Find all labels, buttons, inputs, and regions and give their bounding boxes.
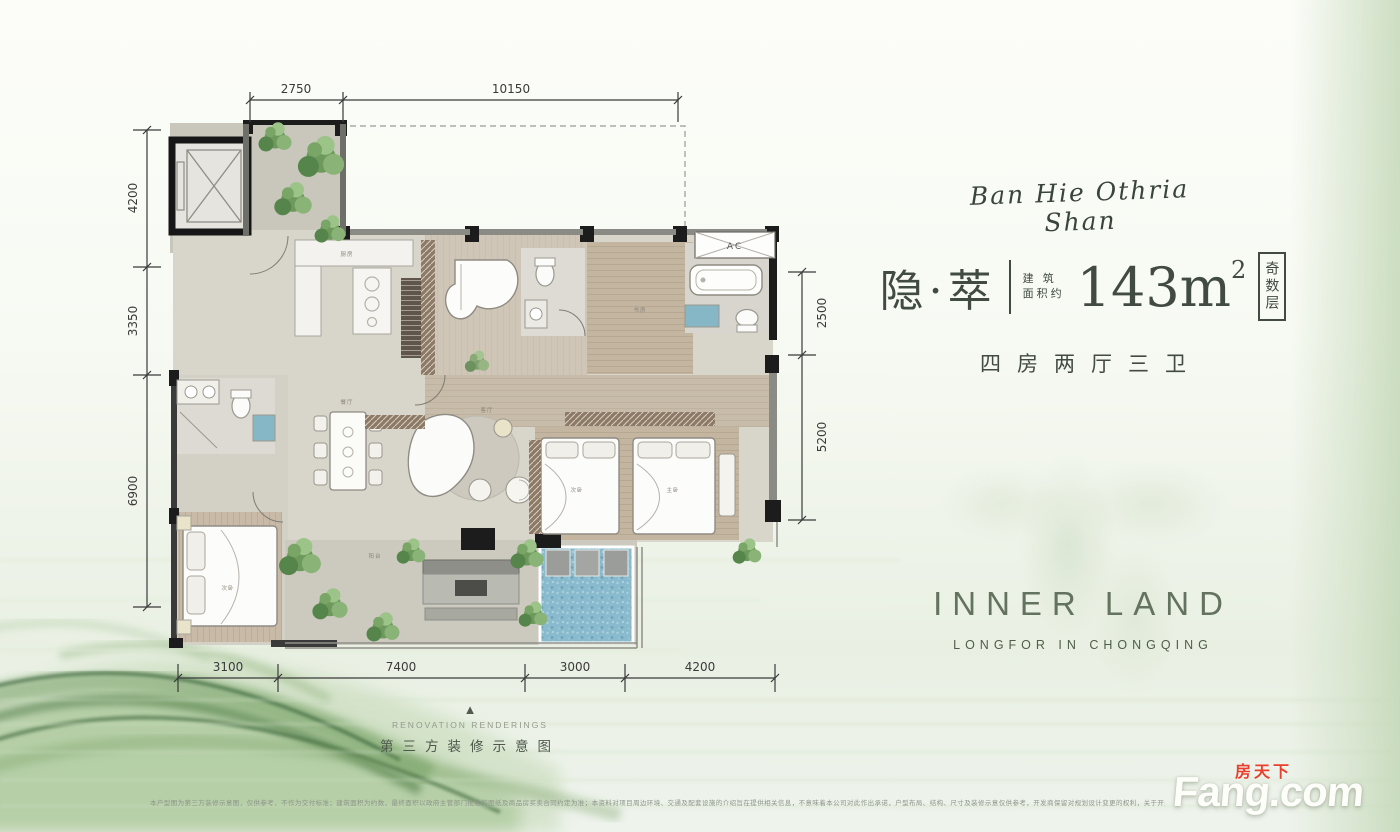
triangle-marker-icon: ▲	[320, 703, 620, 716]
label-balcony: 阳台	[368, 552, 381, 560]
floor-plan: 厨房 餐厅 客厅 书房 主卧 次卧 次卧 阳台 AC 2750 10150 42…	[125, 60, 835, 705]
dim-left-1: 4200	[126, 183, 140, 214]
tall-cabinet	[421, 240, 435, 375]
wine-shelf	[401, 278, 421, 358]
fang-en-text: Fang.com	[1171, 768, 1366, 816]
dim-left-3: 6900	[126, 476, 140, 507]
floor-tag-box: 奇数层	[1258, 252, 1286, 321]
label-study: 书房	[633, 306, 646, 314]
footer-caption-en: RENOVATION RENDERINGS	[320, 720, 620, 730]
area-label: 建 筑 面积约	[1023, 274, 1065, 300]
label-living: 客厅	[480, 406, 493, 414]
pool-loungers	[546, 550, 628, 576]
label-kitchen: 厨房	[340, 250, 353, 258]
label-bedroom3: 次卧	[221, 584, 234, 592]
leaf-watermark	[920, 420, 1250, 700]
bedroom2-bed	[529, 438, 619, 534]
label-dining: 餐厅	[340, 398, 353, 406]
brand-subtitle: LONGFOR IN CHONGQING	[868, 638, 1298, 652]
disclaimer-text: 本户型图为第三方装修示意图，仅供参考，不作为交付标准；建筑面积为约数，最终面积以…	[150, 797, 1165, 807]
brand-logo-text: INNER LAND	[868, 585, 1298, 623]
title-divider	[1009, 260, 1011, 314]
dim-left-2: 3350	[126, 306, 140, 337]
title-block: 隐·萃 建 筑 面积约 143m2 奇数层	[868, 252, 1298, 321]
dim-right-2: 5200	[815, 422, 829, 453]
area-label-line2: 面积约	[1023, 289, 1065, 300]
label-ac: AC	[727, 242, 743, 252]
dim-bottom-1: 3100	[213, 660, 244, 674]
dim-top-1: 2750	[281, 82, 312, 96]
elevator	[172, 140, 248, 232]
brand-signature: Ban Hie Othria Shan	[929, 173, 1231, 241]
dim-top-2: 10150	[492, 82, 530, 96]
label-bedroom2: 次卧	[570, 486, 583, 494]
footer-caption-cn: 第三方装修示意图	[320, 735, 620, 755]
footer-caption: ▲ RENOVATION RENDERINGS 第三方装修示意图	[320, 703, 620, 755]
bedroom3-bed	[177, 516, 277, 634]
dim-bottom-3: 3000	[560, 660, 591, 674]
brand-block: INNER LAND LONGFOR IN CHONGQING	[868, 585, 1298, 652]
unit-name: 隐·萃	[880, 255, 997, 319]
right-green-band	[1290, 0, 1400, 832]
void-dashed-outline	[340, 126, 685, 230]
label-master: 主卧	[666, 486, 679, 494]
area-sup: 2	[1231, 256, 1246, 284]
balcony-sofa	[423, 560, 519, 620]
dim-bottom-2: 7400	[386, 660, 417, 674]
dim-bottom-4: 4200	[685, 660, 716, 674]
area-label-line1: 建 筑	[1023, 274, 1065, 285]
area-value: 143m2	[1077, 260, 1247, 313]
layout-text: 四房两厅三卫	[868, 348, 1298, 378]
fang-watermark[interactable]: 房天下 Fang.com	[1173, 758, 1388, 828]
dim-right-1: 2500	[815, 298, 829, 329]
